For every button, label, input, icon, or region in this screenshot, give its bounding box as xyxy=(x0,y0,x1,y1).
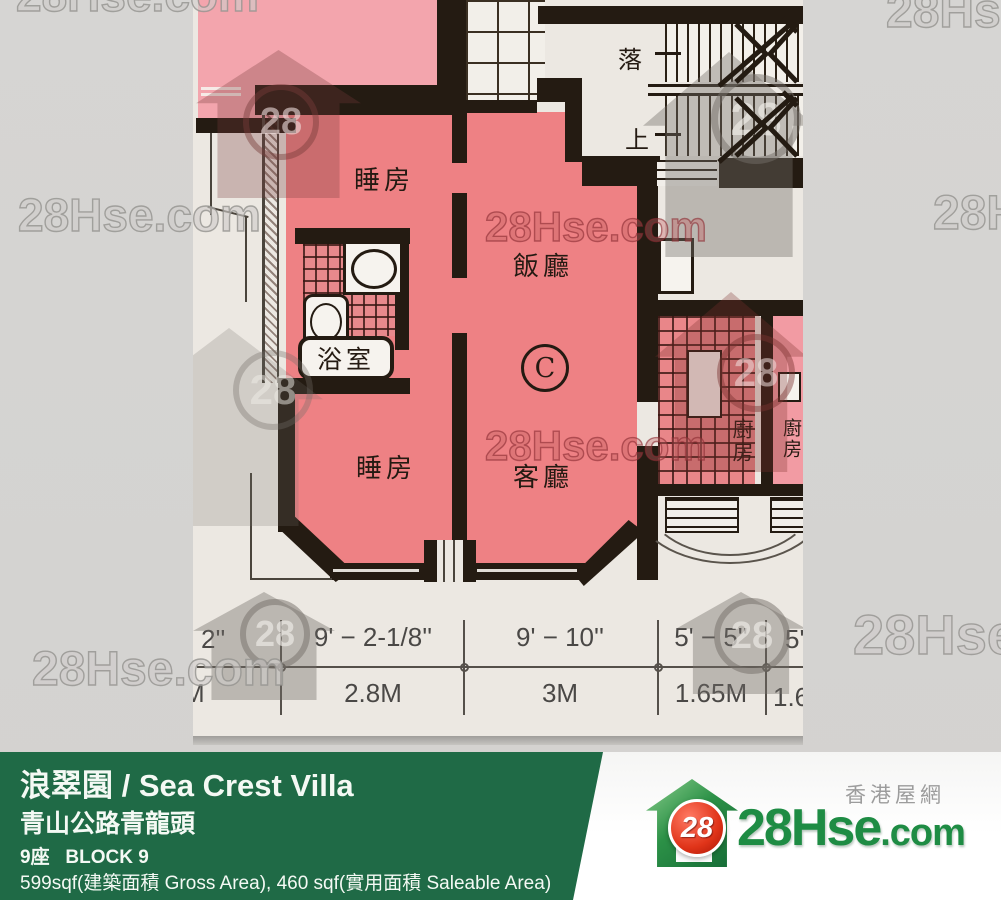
dim-top-0: 2'' xyxy=(201,624,225,655)
exterior-line xyxy=(207,206,248,218)
lobby-tiles xyxy=(466,0,545,100)
wall xyxy=(437,0,466,115)
wall xyxy=(565,100,582,162)
window-line xyxy=(201,93,241,96)
living-label: 客廳 xyxy=(493,457,593,494)
kitchen-counter xyxy=(687,350,722,418)
scan-shadow xyxy=(193,736,803,745)
watermark-text: 28Hse.com xyxy=(853,602,1001,667)
handrail-tick xyxy=(655,52,681,55)
wall xyxy=(278,378,295,532)
dimension-node xyxy=(654,663,663,672)
kitchen-wall-top xyxy=(650,300,803,316)
dim-bottom-4: 1.6 xyxy=(773,682,803,713)
property-area: 599sqf(建築面積 Gross Area), 460 sqf(實用面積 Sa… xyxy=(20,868,551,895)
exterior-line xyxy=(210,133,212,215)
exterior-line xyxy=(250,473,252,580)
logo-28-badge: 28 xyxy=(668,799,726,857)
exterior-line xyxy=(250,578,332,580)
kitchen2-window xyxy=(778,372,801,402)
window-hatch-strip xyxy=(265,115,277,383)
bathroom-label-box: 浴室 xyxy=(298,336,394,380)
window-gap xyxy=(437,540,463,582)
watermark-text: 28Hse.com xyxy=(886,0,1001,39)
unit-marker: C xyxy=(535,353,556,384)
handrail-tick xyxy=(655,133,681,136)
dim-bottom-3: 1.65M xyxy=(659,678,763,709)
screenshot-stage: 落 上 浴室 廚房 廚房 xyxy=(0,0,1001,900)
exterior-line xyxy=(245,216,247,302)
logo-brand-suffix: .com xyxy=(880,812,965,855)
exterior-line xyxy=(277,115,279,383)
dim-top-2: 9' − 10'' xyxy=(465,622,655,653)
window-line xyxy=(201,87,241,90)
wall xyxy=(455,100,537,113)
wall-unit-right xyxy=(637,156,658,402)
wall xyxy=(196,118,296,133)
bathroom-wall-bottom xyxy=(290,378,410,394)
property-block: 9座 BLOCK 9 xyxy=(20,842,149,869)
floorplan-scan: 落 上 浴室 廚房 廚房 xyxy=(193,0,803,738)
watermark-text: 28Hse.com xyxy=(933,186,1001,241)
wall xyxy=(537,78,582,102)
balcony-arc xyxy=(643,436,803,556)
unit-marker-circle: C xyxy=(521,344,569,392)
bedroom-bottom-label: 睡房 xyxy=(336,448,436,485)
unit-fill-dining-living xyxy=(465,112,582,580)
property-address: 青山公路青龍頭 xyxy=(20,804,195,840)
wall xyxy=(452,106,467,163)
wall xyxy=(452,193,467,278)
stairs-down-label: 落 xyxy=(618,40,642,75)
dimension-node xyxy=(277,663,286,672)
dimension-node xyxy=(460,663,469,672)
glazing-line xyxy=(333,569,419,572)
dimension-node xyxy=(762,663,771,672)
entrance-door xyxy=(658,238,694,294)
dining-label: 飯廳 xyxy=(493,246,593,283)
bathroom-label: 浴室 xyxy=(317,340,375,376)
bedroom-top-label: 睡房 xyxy=(334,160,434,197)
glazing-line xyxy=(477,569,577,572)
property-title: 浪翠園 / Sea Crest Villa xyxy=(20,760,354,805)
dim-top-3: 5' − 5'' xyxy=(659,622,763,653)
dim-bottom-0: M xyxy=(193,678,205,709)
site-name-chinese: 香港屋網 xyxy=(845,779,945,809)
window-stub xyxy=(424,540,437,582)
wall xyxy=(255,85,466,115)
window-line xyxy=(453,540,455,582)
property-info-banner: 浪翠園 / Sea Crest Villa 青山公路青龍頭 9座 BLOCK 9… xyxy=(0,752,620,900)
dim-top-1: 9' − 2-1/8'' xyxy=(283,622,463,653)
window-line xyxy=(443,540,445,582)
dim-bottom-1: 2.8M xyxy=(283,678,463,709)
logo-badge-number: 28 xyxy=(681,812,713,845)
dim-bottom-2: 3M xyxy=(465,678,655,709)
sink-basin xyxy=(351,249,397,289)
dim-top-4: 5' xyxy=(785,624,803,655)
stairs-up-label: 上 xyxy=(625,120,649,155)
wall xyxy=(582,156,660,186)
stair-direction-arrows xyxy=(691,16,803,164)
dimension-line xyxy=(197,666,803,668)
